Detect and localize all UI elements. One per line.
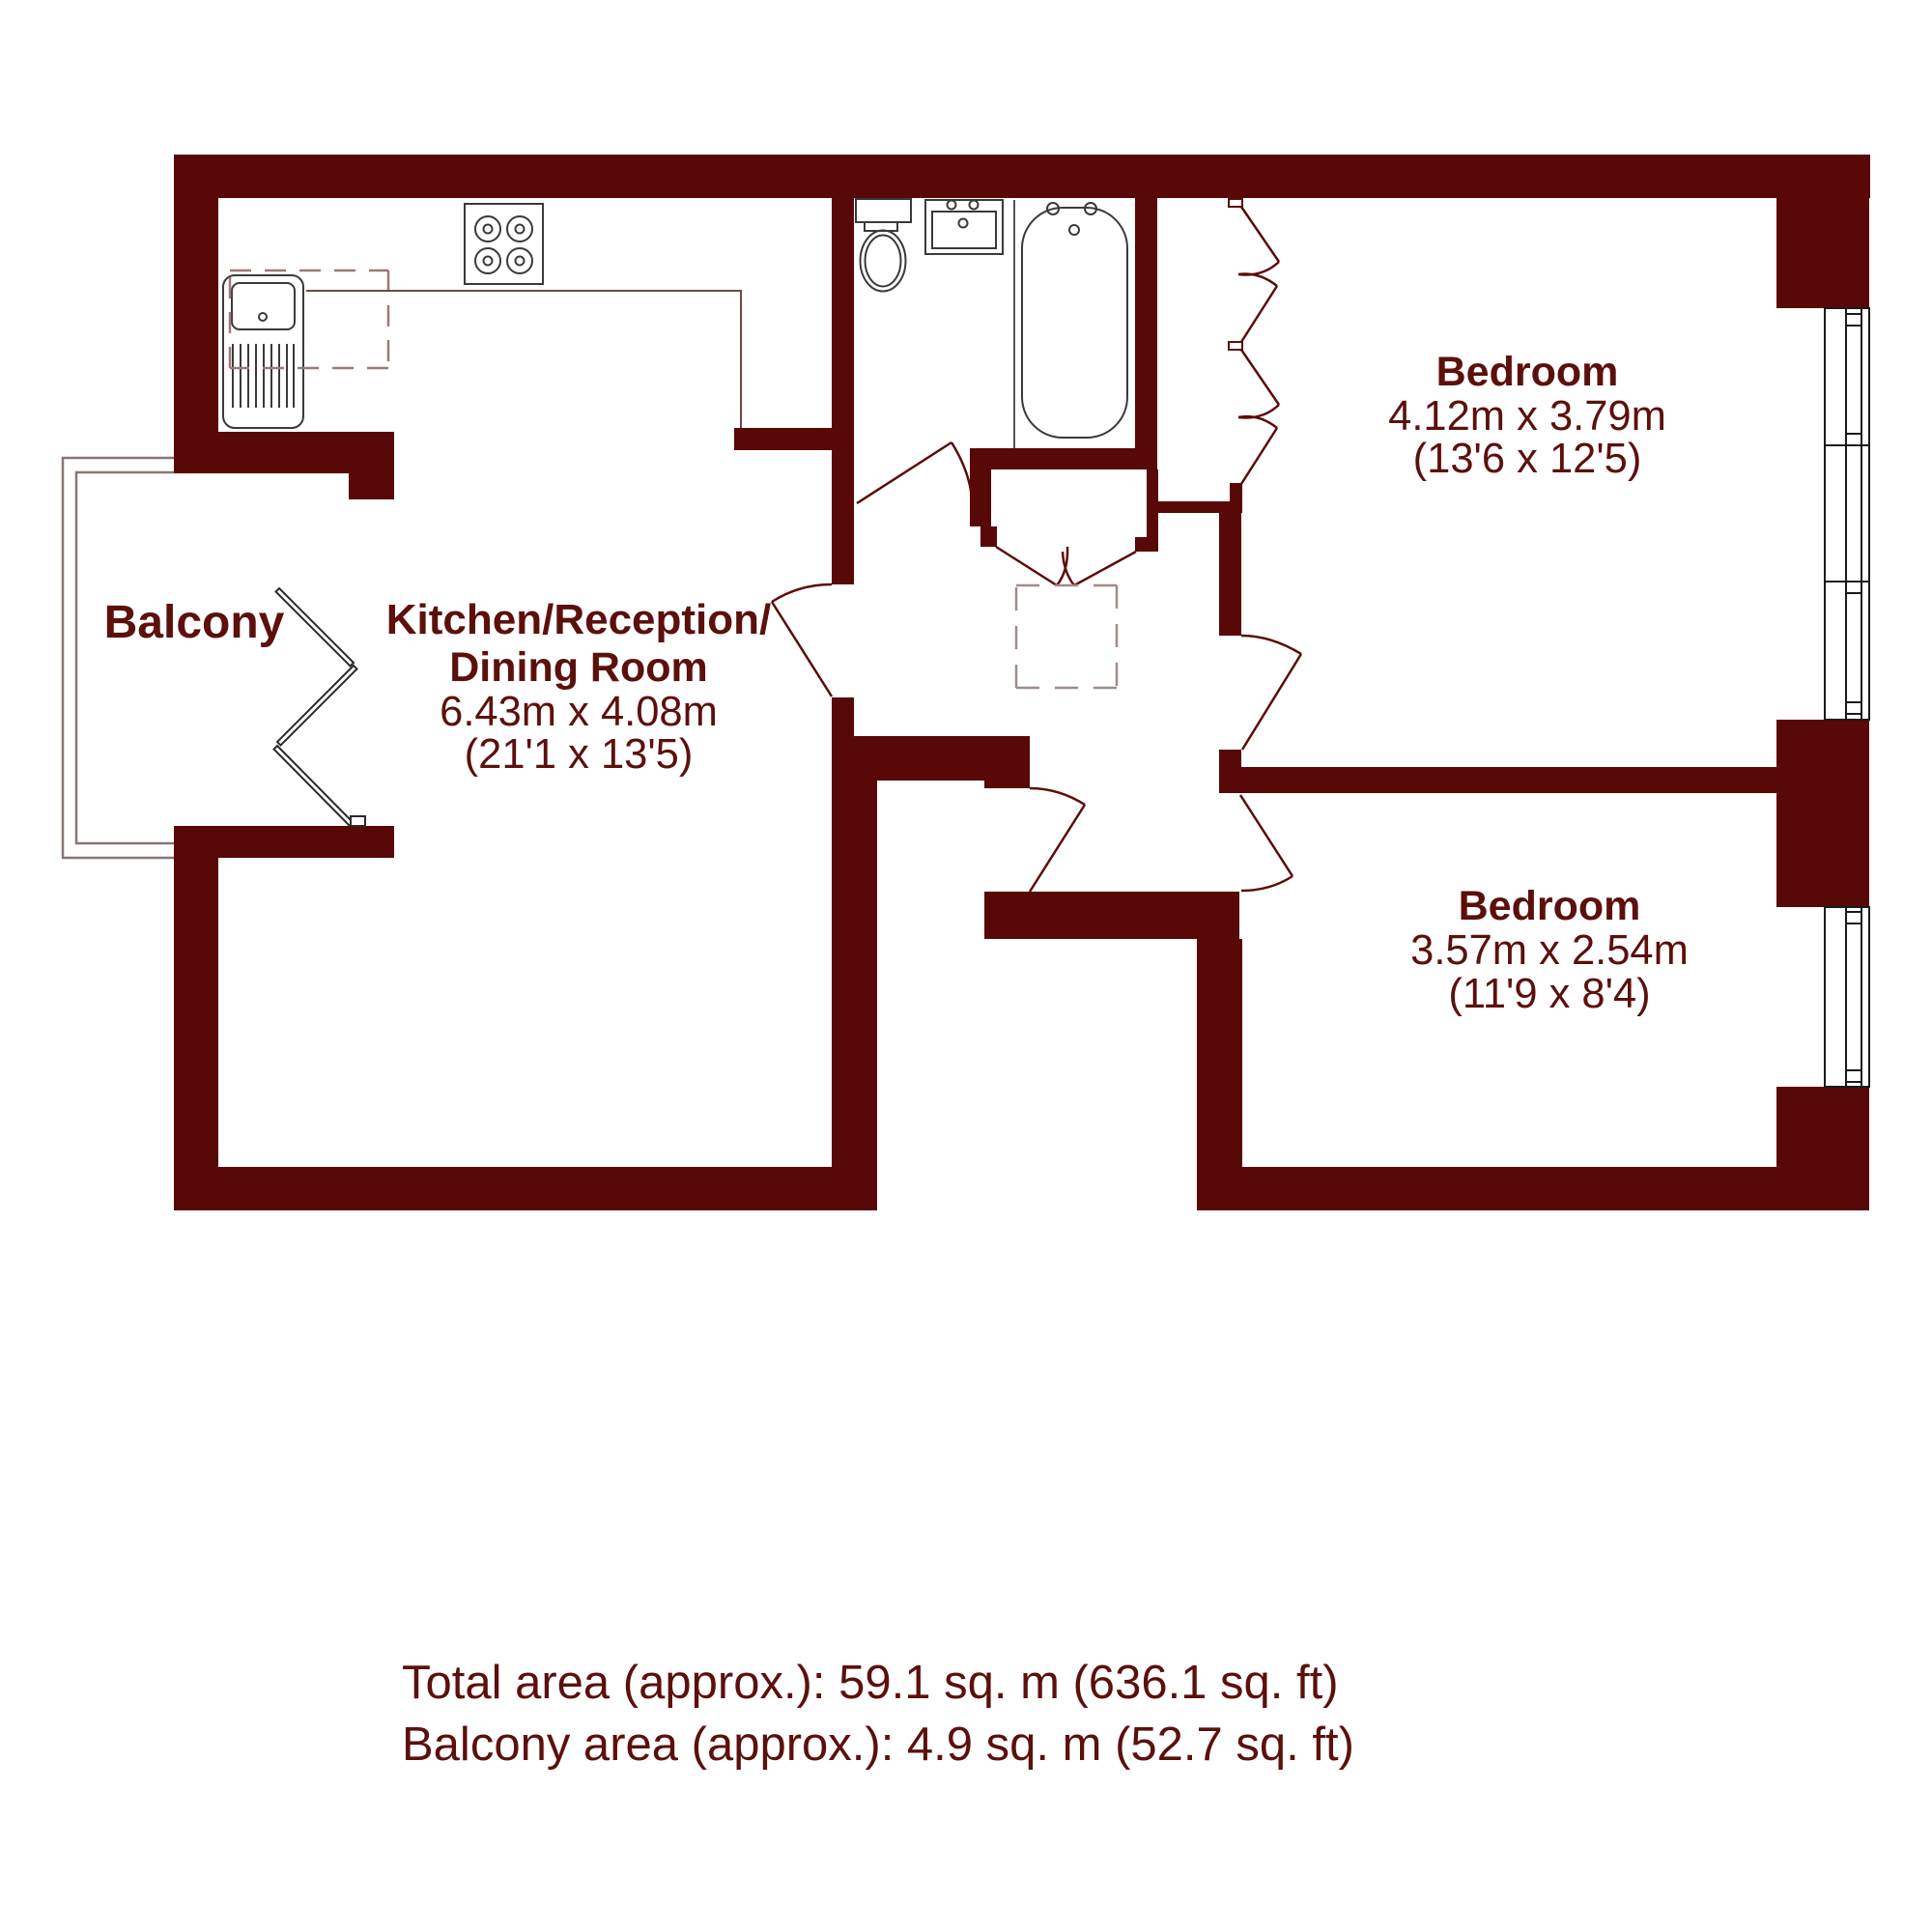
svg-text:Total area (approx.): 59.1 sq.: Total area (approx.): 59.1 sq. m (636.1 …: [402, 1657, 1339, 1709]
svg-text:4.12m x 3.79m: 4.12m x 3.79m: [1388, 393, 1666, 440]
svg-text:Dining Room: Dining Room: [449, 644, 708, 691]
svg-text:(11'9 x 8'4): (11'9 x 8'4): [1448, 971, 1650, 1017]
svg-text:(21'1 x 13'5): (21'1 x 13'5): [465, 731, 694, 778]
svg-text:Balcony area (approx.): 4.9 sq: Balcony area (approx.): 4.9 sq. m (52.7 …: [402, 1719, 1354, 1771]
svg-text:Bedroom: Bedroom: [1459, 883, 1641, 929]
svg-text:3.57m x 2.54m: 3.57m x 2.54m: [1410, 927, 1689, 974]
svg-text:(13'6 x 12'5): (13'6 x 12'5): [1413, 436, 1642, 482]
svg-text:6.43m x 4.08m: 6.43m x 4.08m: [440, 689, 718, 735]
svg-text:Balcony: Balcony: [104, 597, 285, 648]
svg-text:Kitchen/Reception/: Kitchen/Reception/: [386, 596, 772, 643]
svg-text:Bedroom: Bedroom: [1436, 349, 1619, 395]
